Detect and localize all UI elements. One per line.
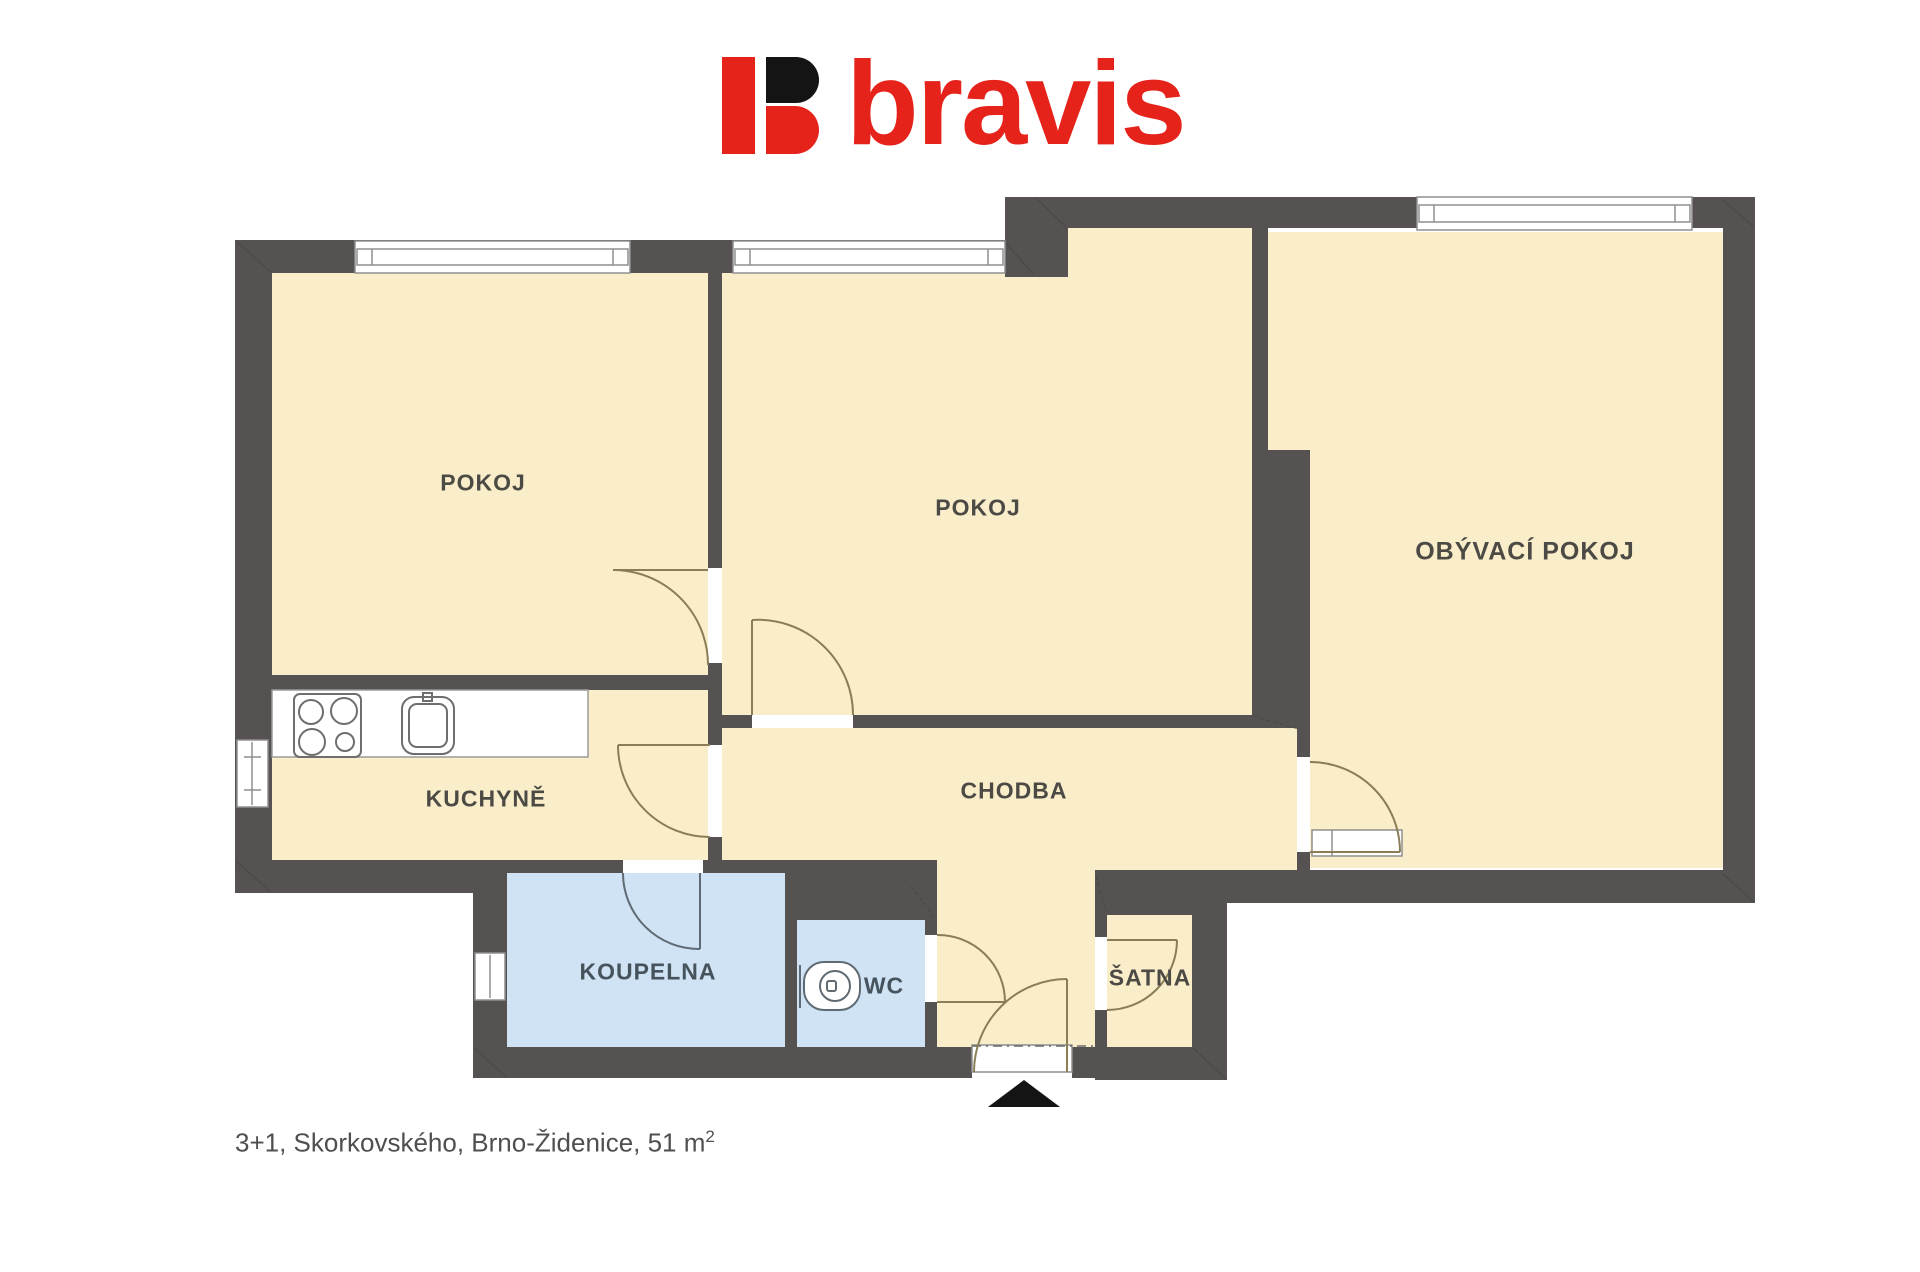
floorplan-drawing (0, 0, 1920, 1272)
caption-text: 3+1, Skorkovského, Brno-Židenice, 51 m (235, 1128, 705, 1158)
sink-icon (402, 693, 454, 754)
room-label-chodba: CHODBA (961, 778, 1068, 805)
floorplan-page: bravis (0, 0, 1920, 1272)
stove-icon (294, 694, 361, 757)
window-icon (355, 241, 630, 273)
listing-caption: 3+1, Skorkovského, Brno-Židenice, 51 m2 (235, 1127, 715, 1159)
room-label-koupelna: KOUPELNA (579, 959, 716, 986)
room-label-wc: WC (864, 973, 904, 1000)
entrance-arrow-icon (988, 1080, 1060, 1107)
room-label-pokoj2: POKOJ (935, 495, 1021, 522)
room-label-pokoj1: POKOJ (440, 470, 526, 497)
window-icon (1417, 197, 1692, 230)
window-icon (237, 740, 268, 807)
room-label-obyvaci: OBÝVACÍ POKOJ (1415, 538, 1635, 567)
window-icon (475, 953, 505, 1000)
pokoj2-floor-notch (1068, 228, 1252, 273)
chodba-entry-floor (937, 860, 1095, 1047)
toilet-icon (800, 962, 860, 1010)
caption-superscript: 2 (705, 1127, 714, 1146)
room-label-satna: ŠATNA (1109, 965, 1192, 992)
entrance-sill-icon (972, 1045, 1072, 1072)
room-label-kuchyne: KUCHYNĚ (426, 786, 547, 813)
kitchen-fixtures (272, 690, 588, 757)
window-icon (733, 241, 1005, 273)
